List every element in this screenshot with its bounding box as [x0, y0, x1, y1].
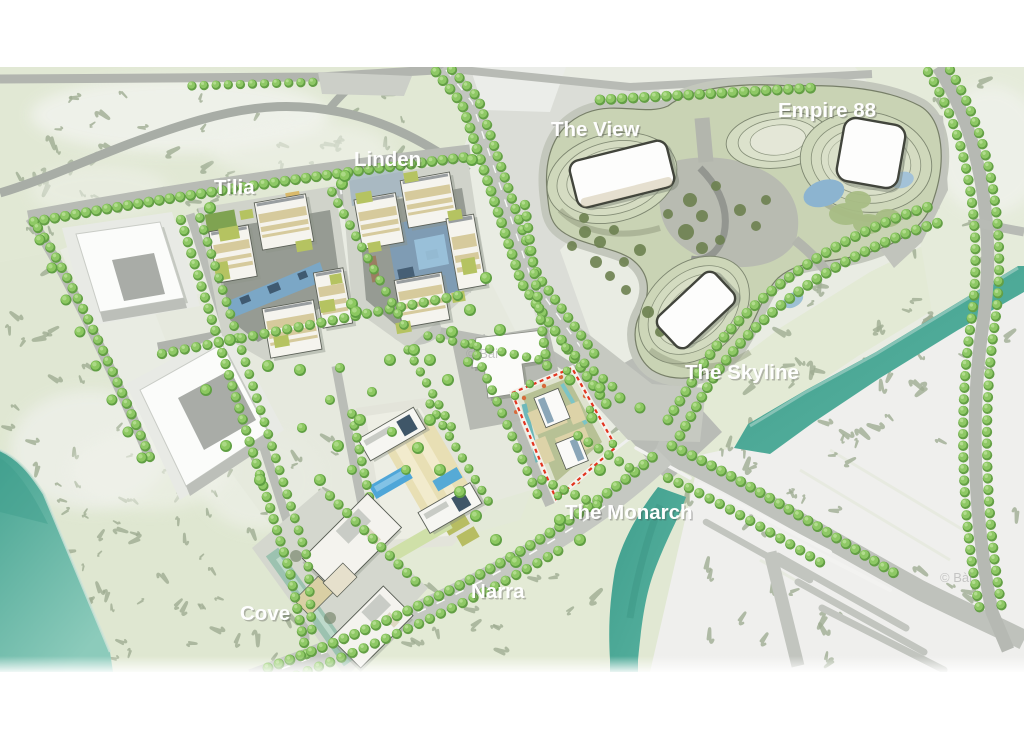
svg-text:Narra: Narra: [471, 580, 525, 603]
svg-text:© Bài: © Bài: [466, 346, 498, 361]
svg-text:The Skyline: The Skyline: [685, 361, 799, 384]
svg-text:© Bài: © Bài: [940, 570, 972, 585]
svg-text:Linden: Linden: [354, 148, 421, 171]
svg-text:Tilia: Tilia: [214, 176, 255, 199]
svg-text:Cove: Cove: [240, 602, 290, 625]
svg-text:The Monarch: The Monarch: [565, 501, 693, 524]
svg-text:The View: The View: [551, 118, 640, 141]
svg-text:Empire 88: Empire 88: [778, 99, 876, 122]
